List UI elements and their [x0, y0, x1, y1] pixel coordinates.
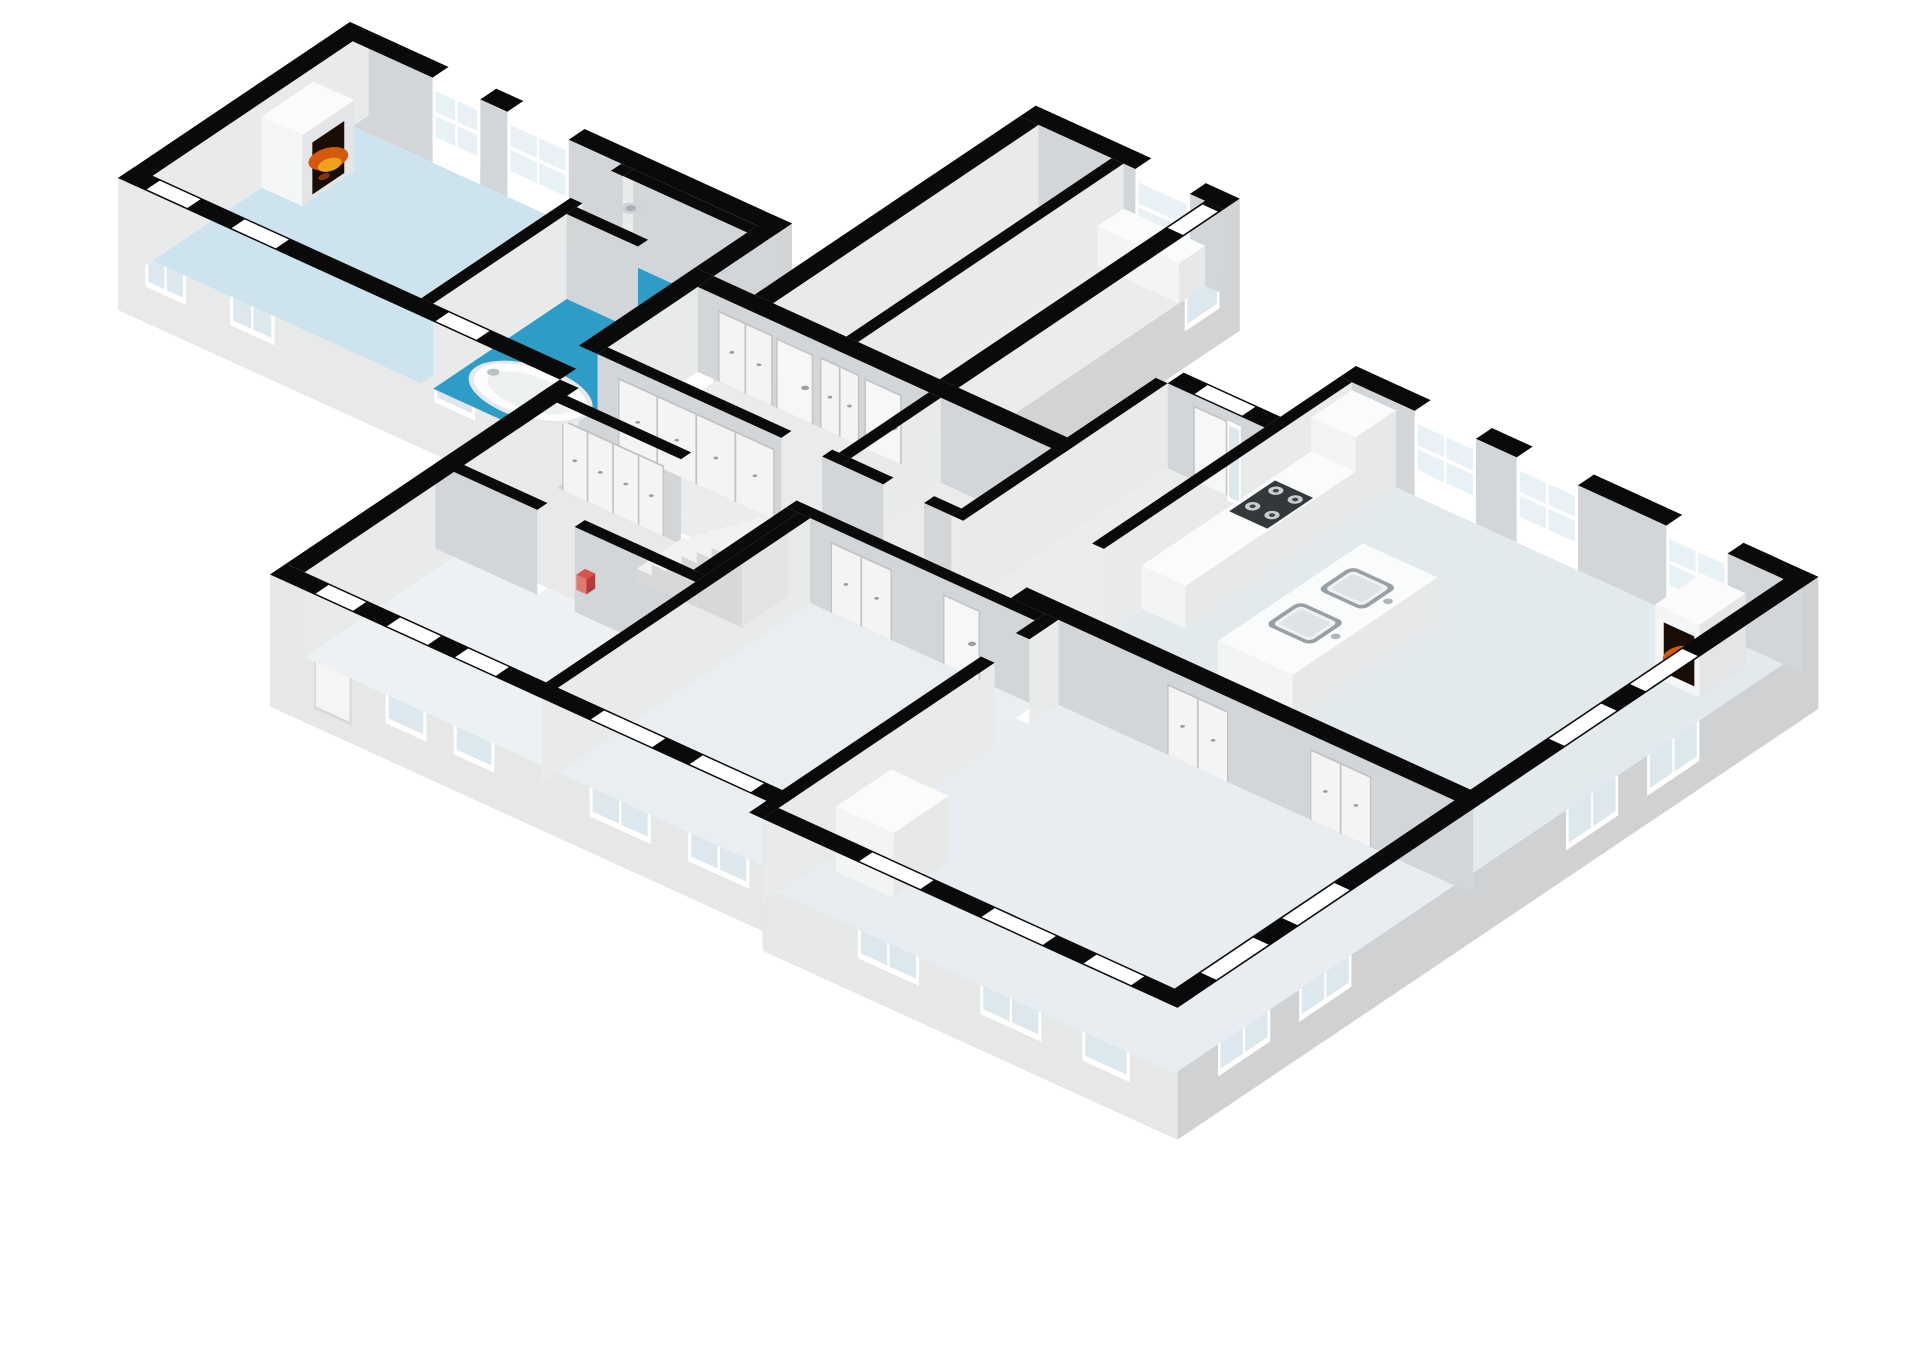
floor-plan-svg	[0, 0, 1920, 1358]
floor-plan-3d	[0, 0, 1920, 1358]
isometric-plan-group	[0, 0, 1920, 1140]
